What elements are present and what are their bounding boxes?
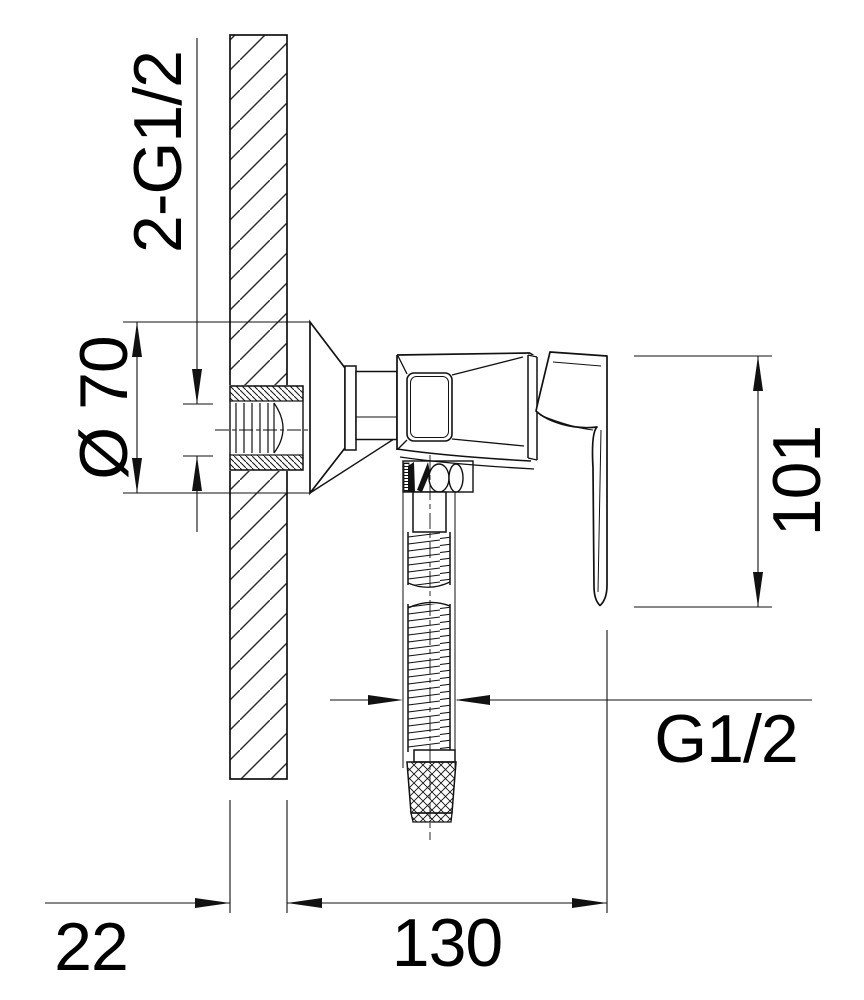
label-wall-thickness: 22 — [54, 909, 128, 985]
label-wall-connections-thread: 2-G1/2 — [120, 51, 196, 253]
drawing-page: 2-G1/2 Ø 70 101 G1/2 22 130 — [0, 0, 864, 1000]
label-escutcheon-diameter: Ø 70 — [66, 336, 142, 479]
escutcheon-cone — [310, 322, 345, 493]
label-valve-depth: 130 — [392, 905, 502, 981]
wall-union-fitting — [215, 385, 321, 471]
label-valve-height: 101 — [759, 426, 835, 536]
label-hose-thread: G1/2 — [654, 701, 797, 777]
lever-handle — [536, 352, 607, 606]
handle-escutcheon — [528, 355, 537, 460]
technical-drawing-canvas: 2-G1/2 Ø 70 101 G1/2 22 130 — [0, 0, 864, 1000]
shower-hose — [407, 455, 456, 840]
mixer-valve — [310, 322, 607, 606]
